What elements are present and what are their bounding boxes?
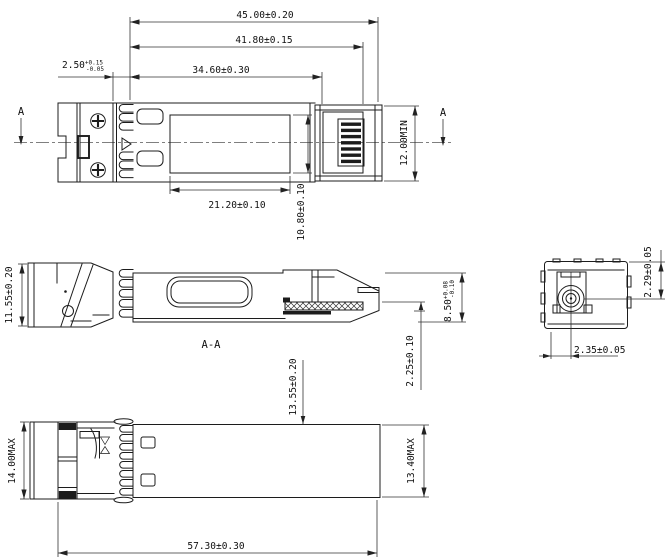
dim-overall-length-bottom: 57.30±0.30 (58, 500, 377, 557)
end-view: 2.29±0.05 2.35±0.05 (539, 246, 665, 359)
dim-label-height: 10.80±0.10 (293, 115, 312, 241)
bottom-view-outline (30, 422, 115, 499)
fiber-receptacle (553, 272, 592, 313)
dim-body-height-max: 13.40MAX (382, 425, 429, 497)
section-letter: A (440, 107, 447, 119)
dim-text: 14.00MAX (7, 438, 18, 484)
dim-body-height: 8.50+0.08-0.10 (385, 273, 466, 322)
bail-arc (91, 429, 96, 458)
emi-fingers-icon (114, 419, 133, 503)
label-recess (170, 115, 290, 173)
latch-block (28, 263, 113, 327)
dim-text: 45.00±0.20 (236, 10, 293, 21)
section-cut-marker-right: A (440, 107, 447, 146)
top-view: A A 45.00±0.20 41.80±0.15 34.60±0.30 (14, 10, 452, 241)
emi-fingers-icon (119, 270, 133, 318)
dim-text: 11.55±0.20 (4, 266, 15, 323)
edge-connector (315, 105, 382, 181)
phillips-screw-icon (91, 114, 106, 129)
top-body-features (137, 109, 290, 173)
connector-pads-icon (341, 123, 361, 164)
dim-text: 12.00MIN (399, 120, 410, 166)
dim-overall-length: 45.00±0.20 (130, 10, 378, 102)
dim-label-width: 21.20±0.10 (170, 176, 290, 211)
section-title: A-A (202, 339, 222, 351)
dim-front-height: 11.55±0.20 (4, 264, 27, 326)
engineering-drawing: A A 45.00±0.20 41.80±0.15 34.60±0.30 (0, 0, 667, 558)
dim-to-body: 34.60±0.30 (130, 65, 322, 104)
svg-text:8.50+0.08-0.10: 8.50+0.08-0.10 (443, 280, 457, 322)
dim-text: 13.40MAX (406, 438, 417, 484)
dim-axis-horizontal: 2.35±0.05 (539, 313, 625, 359)
dim-connector-width: 12.00MIN (384, 106, 419, 181)
pcb-section-hatch (285, 302, 363, 310)
bail-pivot-icon (63, 306, 74, 317)
dim-text: 2.50+0.15-0.05 (62, 60, 104, 74)
section-arrow-icon (441, 137, 446, 146)
dim-text: 13.55±0.20 (288, 358, 299, 415)
dim-text: 2.35±0.05 (574, 345, 625, 356)
dim-text: 8.50+0.08-0.10 (443, 280, 457, 322)
section-view-aa: A-A 11.55±0.20 8.50+0.08-0.10 2.25±0.10 (4, 263, 466, 424)
section-arrow-icon (19, 136, 24, 145)
dim-text: 21.20±0.10 (208, 200, 265, 211)
dim-front-offset: 2.50+0.15-0.05 (58, 60, 139, 101)
emi-fingers-icon (119, 105, 133, 178)
dim-front-height-max: 14.00MAX (7, 422, 29, 499)
dim-text: 2.25±0.10 (405, 335, 416, 387)
section-body (133, 270, 379, 322)
dim-text: 41.80±0.15 (235, 35, 292, 46)
dim-pcb-offset: 2.25±0.10 (382, 302, 425, 390)
section-cut-marker-left: A (18, 106, 25, 145)
dim-axis-height: 13.55±0.20 (288, 358, 305, 424)
section-letter: A (18, 106, 25, 118)
bottom-view: 14.00MAX 13.40MAX 57.30±0.30 (7, 419, 429, 557)
dim-text: 10.80±0.10 (296, 183, 307, 240)
latch-pointer-icon (122, 138, 131, 150)
dim-axis-vertical: 2.29±0.05 (584, 246, 665, 299)
latch-direction-icon (101, 437, 110, 454)
dim-text: 57.30±0.30 (187, 541, 244, 552)
sfp-outline-drawing: A A 45.00±0.20 41.80±0.15 34.60±0.30 (0, 0, 667, 558)
phillips-screw-icon (91, 163, 106, 178)
dim-text: 34.60±0.30 (192, 65, 249, 76)
bottom-body (133, 425, 380, 498)
dim-text: 2.29±0.05 (643, 246, 654, 297)
